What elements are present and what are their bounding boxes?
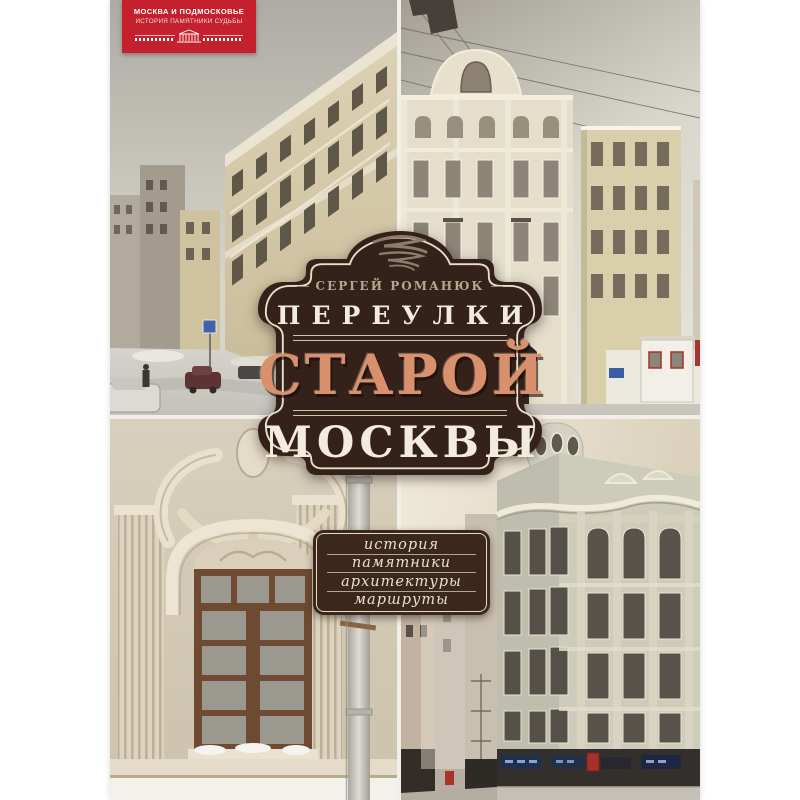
topic-routes: маршруты [327,591,476,610]
topics-badge: история памятники архитектуры маршруты [313,530,490,615]
classical-building-icon [122,29,256,49]
book-cover: МОСКВА И ПОДМОСКОВЬЕ ИСТОРИЯ ПАМЯТНИКИ С… [110,0,700,800]
topic-architecture: архитектуры [327,572,476,591]
divider-rule-bottom [293,410,507,416]
series-title: МОСКВА И ПОДМОСКОВЬЕ [122,7,256,16]
topic-history: история [327,536,476,554]
title-badge: СЕРГЕЙ РОМАНЮК ПЕРЕУЛКИ СТАРОЙ МОСКВЫ [255,228,545,480]
title-line-staroy: СТАРОЙ [255,340,545,410]
series-subtitle: ИСТОРИЯ ПАМЯТНИКИ СУДЬБЫ [122,18,256,26]
author-name: СЕРГЕЙ РОМАНЮК [255,279,545,293]
title-line-pereulki: ПЕРЕУЛКИ [255,300,545,332]
flourish-icon [255,232,545,278]
topics-list: история памятники архитектуры маршруты [316,533,487,612]
book-cover-page: МОСКВА И ПОДМОСКОВЬЕ ИСТОРИЯ ПАМЯТНИКИ С… [0,0,800,800]
series-badge: МОСКВА И ПОДМОСКОВЬЕ ИСТОРИЯ ПАМЯТНИКИ С… [122,0,256,53]
title-line-moskvy: МОСКВЫ [255,417,545,469]
topic-monuments: памятники [327,554,476,573]
